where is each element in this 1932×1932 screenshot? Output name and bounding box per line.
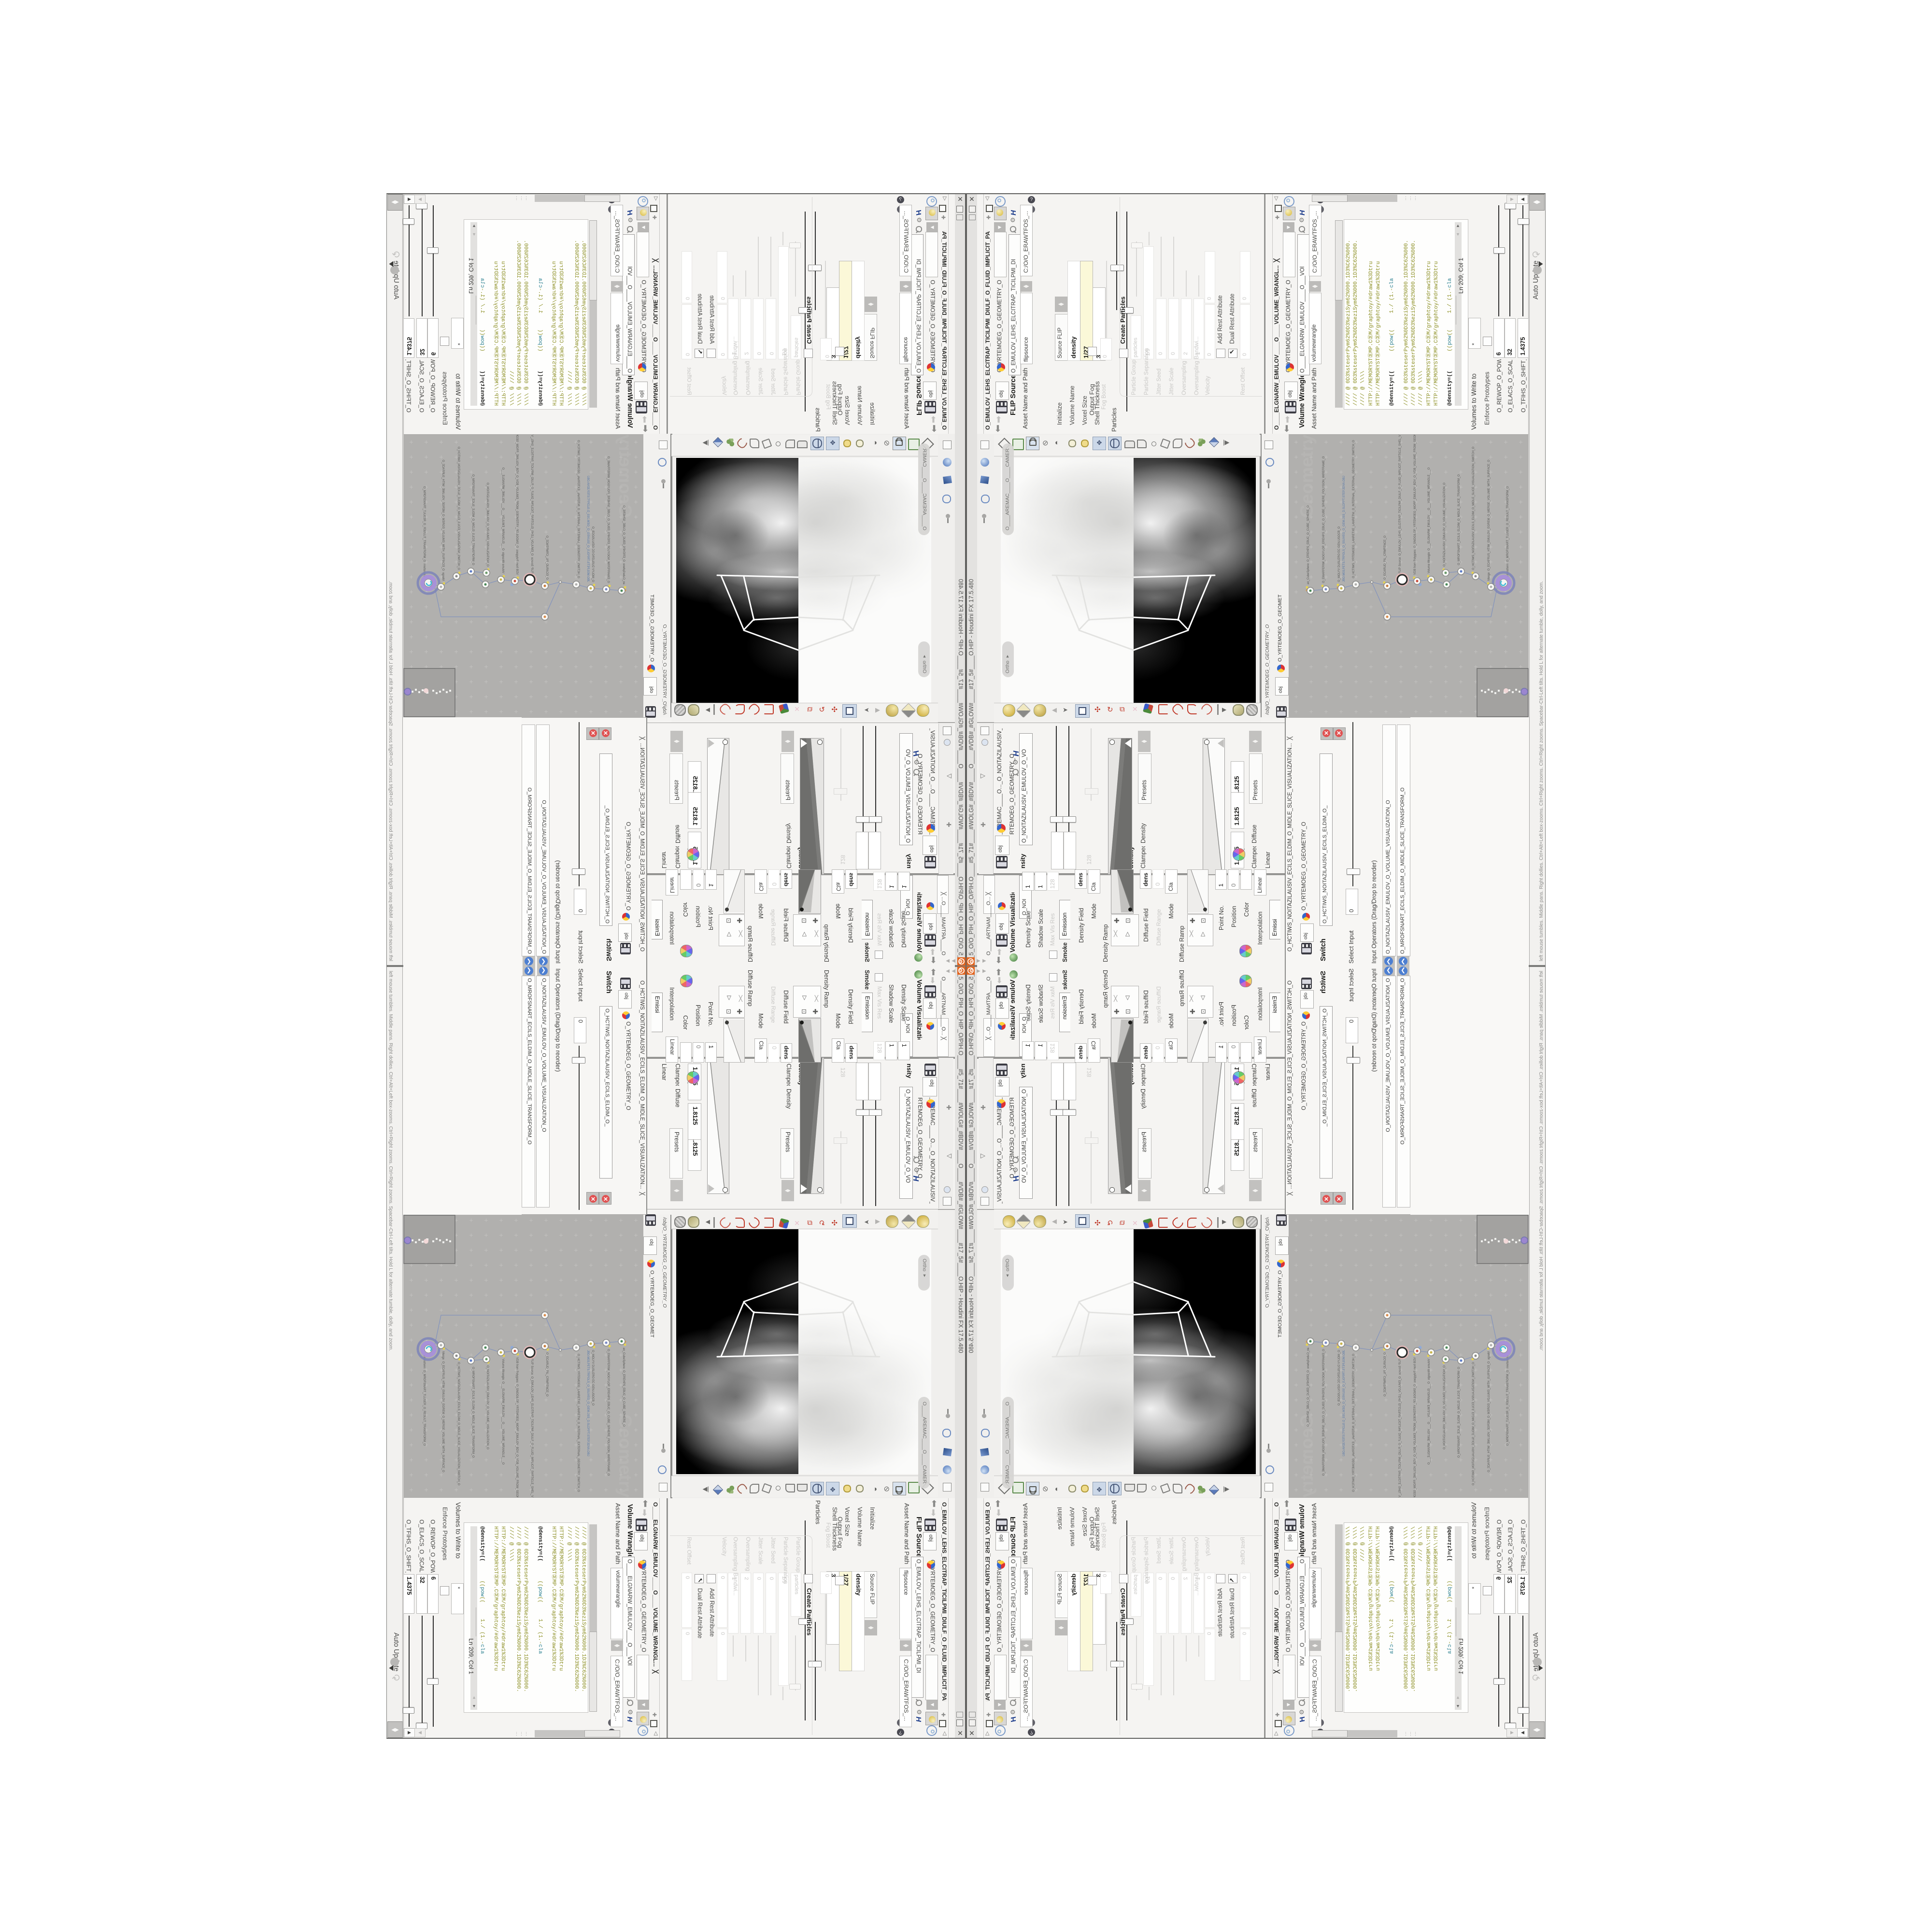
svg-text:O_EMARFERIW_NOGYLOP_EREHPS_EBU: O_EMARFERIW_NOGYLOP_EREHPS_EBUC_O_CUBE_S…: [607, 1349, 610, 1476]
svg-text:an_CubeSphere O_EREHPS_EBUC_O: an_CubeSphere O_EREHPS_EBUC_O_CUBE_SPHER…: [622, 505, 625, 584]
svg-text:Geometry: Geometry: [1297, 1414, 1317, 1497]
svg-text:Geometry: Geometry: [1297, 435, 1317, 518]
svg-text:O_EMARFERIW_NOGYLOP_EREHPS_EBU: O_EMARFERIW_NOGYLOP_EREHPS_EBUC_O_CUBE_S…: [1322, 1349, 1325, 1476]
svg-text:O_MROFSNART_ECILS_ELDIM_O_MIDL: O_MROFSNART_ECILS_ELDIM_O_MIDLE_SLICE_TR…: [471, 474, 474, 565]
svg-text:FLIP Source O_EMULOV_LEHS_ELC: FLIP Source O_EMULOV_LEHS_ELCITRAP_TICIL…: [1399, 1359, 1402, 1497]
svg-text:O_MROFSNART_ECILS_ELDIM_O_MIDL: O_MROFSNART_ECILS_ELDIM_O_MIDLE_SLICE_TR…: [1458, 474, 1461, 565]
svg-text:Volume Wrangle O___ELGNARW_EM: Volume Wrangle O___ELGNARW_EMULOV___O___…: [501, 467, 504, 573]
svg-text:O_EMARFERIW_NOGYLOP_EREHPS_EBU: O_EMARFERIW_NOGYLOP_EREHPS_EBUC_O_CUBE_S…: [1322, 456, 1325, 583]
svg-text:O_HCTIWS_YRTEMOEG_LANRETXE_LAN: O_HCTIWS_YRTEMOEG_LANRETXE_LANRETNI_O_IN…: [1352, 440, 1355, 578]
svg-text:O_NOITAZILAUSIV_EMULOV_O_VOLUM: O_NOITAZILAUSIV_EMULOV_O_VOLUME_VISUALIZ…: [1443, 1365, 1446, 1449]
svg-text:O_MOLYV DUSLERO EC GEN.USOCB_O: O_MOLYV DUSLERO EC GEN.USOCB_O: [591, 526, 594, 582]
svg-text:O_HCTIWS_NOITAZILAUSIV_ECILS_E: O_HCTIWS_NOITAZILAUSIV_ECILS_ELDIM_O_MID…: [1472, 1362, 1475, 1486]
svg-text:O_NOITAZILAUSIV_EMULOV_O_VOLUM: O_NOITAZILAUSIV_EMULOV_O_VOLUME_VISUALIZ…: [486, 483, 489, 567]
svg-text:an_CubeSphere O_EREHPS_EBUC_O: an_CubeSphere O_EREHPS_EBUC_O_CUBE_SPHER…: [1307, 505, 1310, 584]
svg-text:O_MROFSNART_ECILS_ELDIM_O_MIDL: O_MROFSNART_ECILS_ELDIM_O_MIDLE_SLICE_TR…: [471, 1367, 474, 1458]
svg-text:VDB from Polygons O_SNOGILOP_: VDB from Polygons O_SNOGILOP_YRTEMOEG_MO…: [1414, 435, 1417, 575]
svg-text:an_CubeSphere O_EREHPS_EBUC_O: an_CubeSphere O_EREHPS_EBUC_O_CUBE_SPHER…: [1307, 1348, 1310, 1427]
svg-text:Volume Wrangle O___ELGNARW_EM: Volume Wrangle O___ELGNARW_EMULOV___O___…: [1428, 1359, 1431, 1465]
svg-text:Merge O_ECAFRUS_HTIW_EMULOV_E: Merge O_ECAFRUS_HTIW_EMULOV_EGREM_O_MERG…: [1488, 460, 1491, 581]
svg-text:Volume Wrangle O___ELGNARW_EM: Volume Wrangle O___ELGNARW_EMULOV___O___…: [1428, 467, 1431, 573]
svg-text:FLIP Source O_EMULOV_LEHS_ELC: FLIP Source O_EMULOV_LEHS_ELCITRAP_TICIL…: [530, 435, 533, 573]
svg-text:FLIP Source O_EMULOV_LEHS_ELC: FLIP Source O_EMULOV_LEHS_ELCITRAP_TICIL…: [1399, 435, 1402, 573]
svg-text:O_ECARUD_PIL_CRMFENCE_O: O_ECARUD_PIL_CRMFENCE_O: [545, 1352, 548, 1396]
svg-text:FLIP Source O_EMULOV_LEHS_ELC: FLIP Source O_EMULOV_LEHS_ELCITRAP_TICIL…: [530, 1359, 533, 1497]
svg-text:O_ECARUD_PIL_CRMFENCE_O: O_ECARUD_PIL_CRMFENCE_O: [1384, 536, 1387, 580]
svg-text:Transform O_MROFSNART_TLUSER_: Transform O_MROFSNART_TLUSER_O_RESULT_TR…: [423, 486, 426, 577]
svg-text:O_EMARFERIW_NOGYLOP_EREHPS_EBU: O_EMARFERIW_NOGYLOP_EREHPS_EBUC_O_CUBE_S…: [607, 456, 610, 583]
svg-text:O_HCTIWS_YRTEMOEG_LANRETXE_LAN: O_HCTIWS_YRTEMOEG_LANRETXE_LANRETNI_O_IN…: [577, 1354, 580, 1492]
svg-text:O_ECARUD_PIL_CRMFENCE_O: O_ECARUD_PIL_CRMFENCE_O: [1384, 1352, 1387, 1396]
svg-text:VDB from Polygons O_SNOGILOP_: VDB from Polygons O_SNOGILOP_YRTEMOEG_MO…: [1414, 1357, 1417, 1497]
svg-text:O_MOLYV DUSLERO EC GEN.USOCB_O: O_MOLYV DUSLERO EC GEN.USOCB_O: [1338, 1350, 1341, 1406]
svg-text:O_HCTIWS_YRTEMOEG_LANRETXE_LAN: O_HCTIWS_YRTEMOEG_LANRETXE_LANRETNI_O_IN…: [577, 440, 580, 578]
svg-text:O_ECARUD_PIL_CRMFENCE_O: O_ECARUD_PIL_CRMFENCE_O: [545, 536, 548, 580]
svg-text:VDB from Polygons O_SNOGILOP_: VDB from Polygons O_SNOGILOP_YRTEMOEG_MO…: [515, 1357, 518, 1497]
svg-text:JBO.M03,PETS.TRPOLS_O_5SUVEG_O: JBO.M03,PETS.TRPOLS_O_5SUVEG_O_GEM.JSS_D…: [586, 476, 589, 582]
svg-text:an_CubeSphere O_EREHPS_EBUC_O: an_CubeSphere O_EREHPS_EBUC_O_CUBE_SPHER…: [622, 1348, 625, 1427]
svg-text:Geometry: Geometry: [615, 1414, 635, 1497]
svg-text:Geometry: Geometry: [615, 435, 635, 518]
svg-text:O_NOITAZILAUSIV_EMULOV_O_VOLUM: O_NOITAZILAUSIV_EMULOV_O_VOLUME_VISUALIZ…: [486, 1365, 489, 1449]
svg-text:O_NOITAZILAUSIV_EMULOV_O_VOLUM: O_NOITAZILAUSIV_EMULOV_O_VOLUME_VISUALIZ…: [1443, 483, 1446, 567]
svg-text:JBO.M03,PETS.TRPOLS_O_5SUVEG_O: JBO.M03,PETS.TRPOLS_O_5SUVEG_O_GEM.JSS_D…: [586, 1350, 589, 1456]
svg-text:Transform O_MROFSNART_TLUSER_: Transform O_MROFSNART_TLUSER_O_RESULT_TR…: [423, 1355, 426, 1446]
svg-text:JBO.M03,PETS.TRPOLS_O_5SUVEG_O: JBO.M03,PETS.TRPOLS_O_5SUVEG_O_GEM.JSS_D…: [1343, 476, 1346, 582]
svg-text:Transform O_MROFSNART_TLUSER_: Transform O_MROFSNART_TLUSER_O_RESULT_TR…: [1506, 1355, 1509, 1446]
svg-text:Transform O_MROFSNART_TLUSER_: Transform O_MROFSNART_TLUSER_O_RESULT_TR…: [1506, 486, 1509, 577]
svg-text:O_HCTIWS_YRTEMOEG_LANRETXE_LAN: O_HCTIWS_YRTEMOEG_LANRETXE_LANRETNI_O_IN…: [1352, 1354, 1355, 1492]
svg-text:Merge O_ECAFRUS_HTIW_EMULOV_E: Merge O_ECAFRUS_HTIW_EMULOV_EGREM_O_MERG…: [1488, 1351, 1491, 1472]
svg-text:O_HCTIWS_NOITAZILAUSIV_ECILS_E: O_HCTIWS_NOITAZILAUSIV_ECILS_ELDIM_O_MID…: [457, 446, 460, 570]
svg-text:VDB from Polygons O_SNOGILOP_: VDB from Polygons O_SNOGILOP_YRTEMOEG_MO…: [515, 435, 518, 575]
svg-text:O_HCTIWS_NOITAZILAUSIV_ECILS_E: O_HCTIWS_NOITAZILAUSIV_ECILS_ELDIM_O_MID…: [457, 1362, 460, 1486]
svg-text:O_MROFSNART_ECILS_ELDIM_O_MIDL: O_MROFSNART_ECILS_ELDIM_O_MIDLE_SLICE_TR…: [1458, 1367, 1461, 1458]
svg-text:JBO.M03,PETS.TRPOLS_O_5SUVEG_O: JBO.M03,PETS.TRPOLS_O_5SUVEG_O_GEM.JSS_D…: [1343, 1350, 1346, 1456]
svg-text:Merge O_ECAFRUS_HTIW_EMULOV_E: Merge O_ECAFRUS_HTIW_EMULOV_EGREM_O_MERG…: [441, 460, 444, 581]
svg-text:O_HCTIWS_NOITAZILAUSIV_ECILS_E: O_HCTIWS_NOITAZILAUSIV_ECILS_ELDIM_O_MID…: [1472, 446, 1475, 570]
svg-text:Merge O_ECAFRUS_HTIW_EMULOV_E: Merge O_ECAFRUS_HTIW_EMULOV_EGREM_O_MERG…: [441, 1351, 444, 1472]
svg-text:O_MOLYV DUSLERO EC GEN.USOCB_O: O_MOLYV DUSLERO EC GEN.USOCB_O: [591, 1350, 594, 1406]
svg-text:Volume Wrangle O___ELGNARW_EM: Volume Wrangle O___ELGNARW_EMULOV___O___…: [501, 1359, 504, 1465]
svg-text:O_MOLYV DUSLERO EC GEN.USOCB_O: O_MOLYV DUSLERO EC GEN.USOCB_O: [1338, 526, 1341, 582]
